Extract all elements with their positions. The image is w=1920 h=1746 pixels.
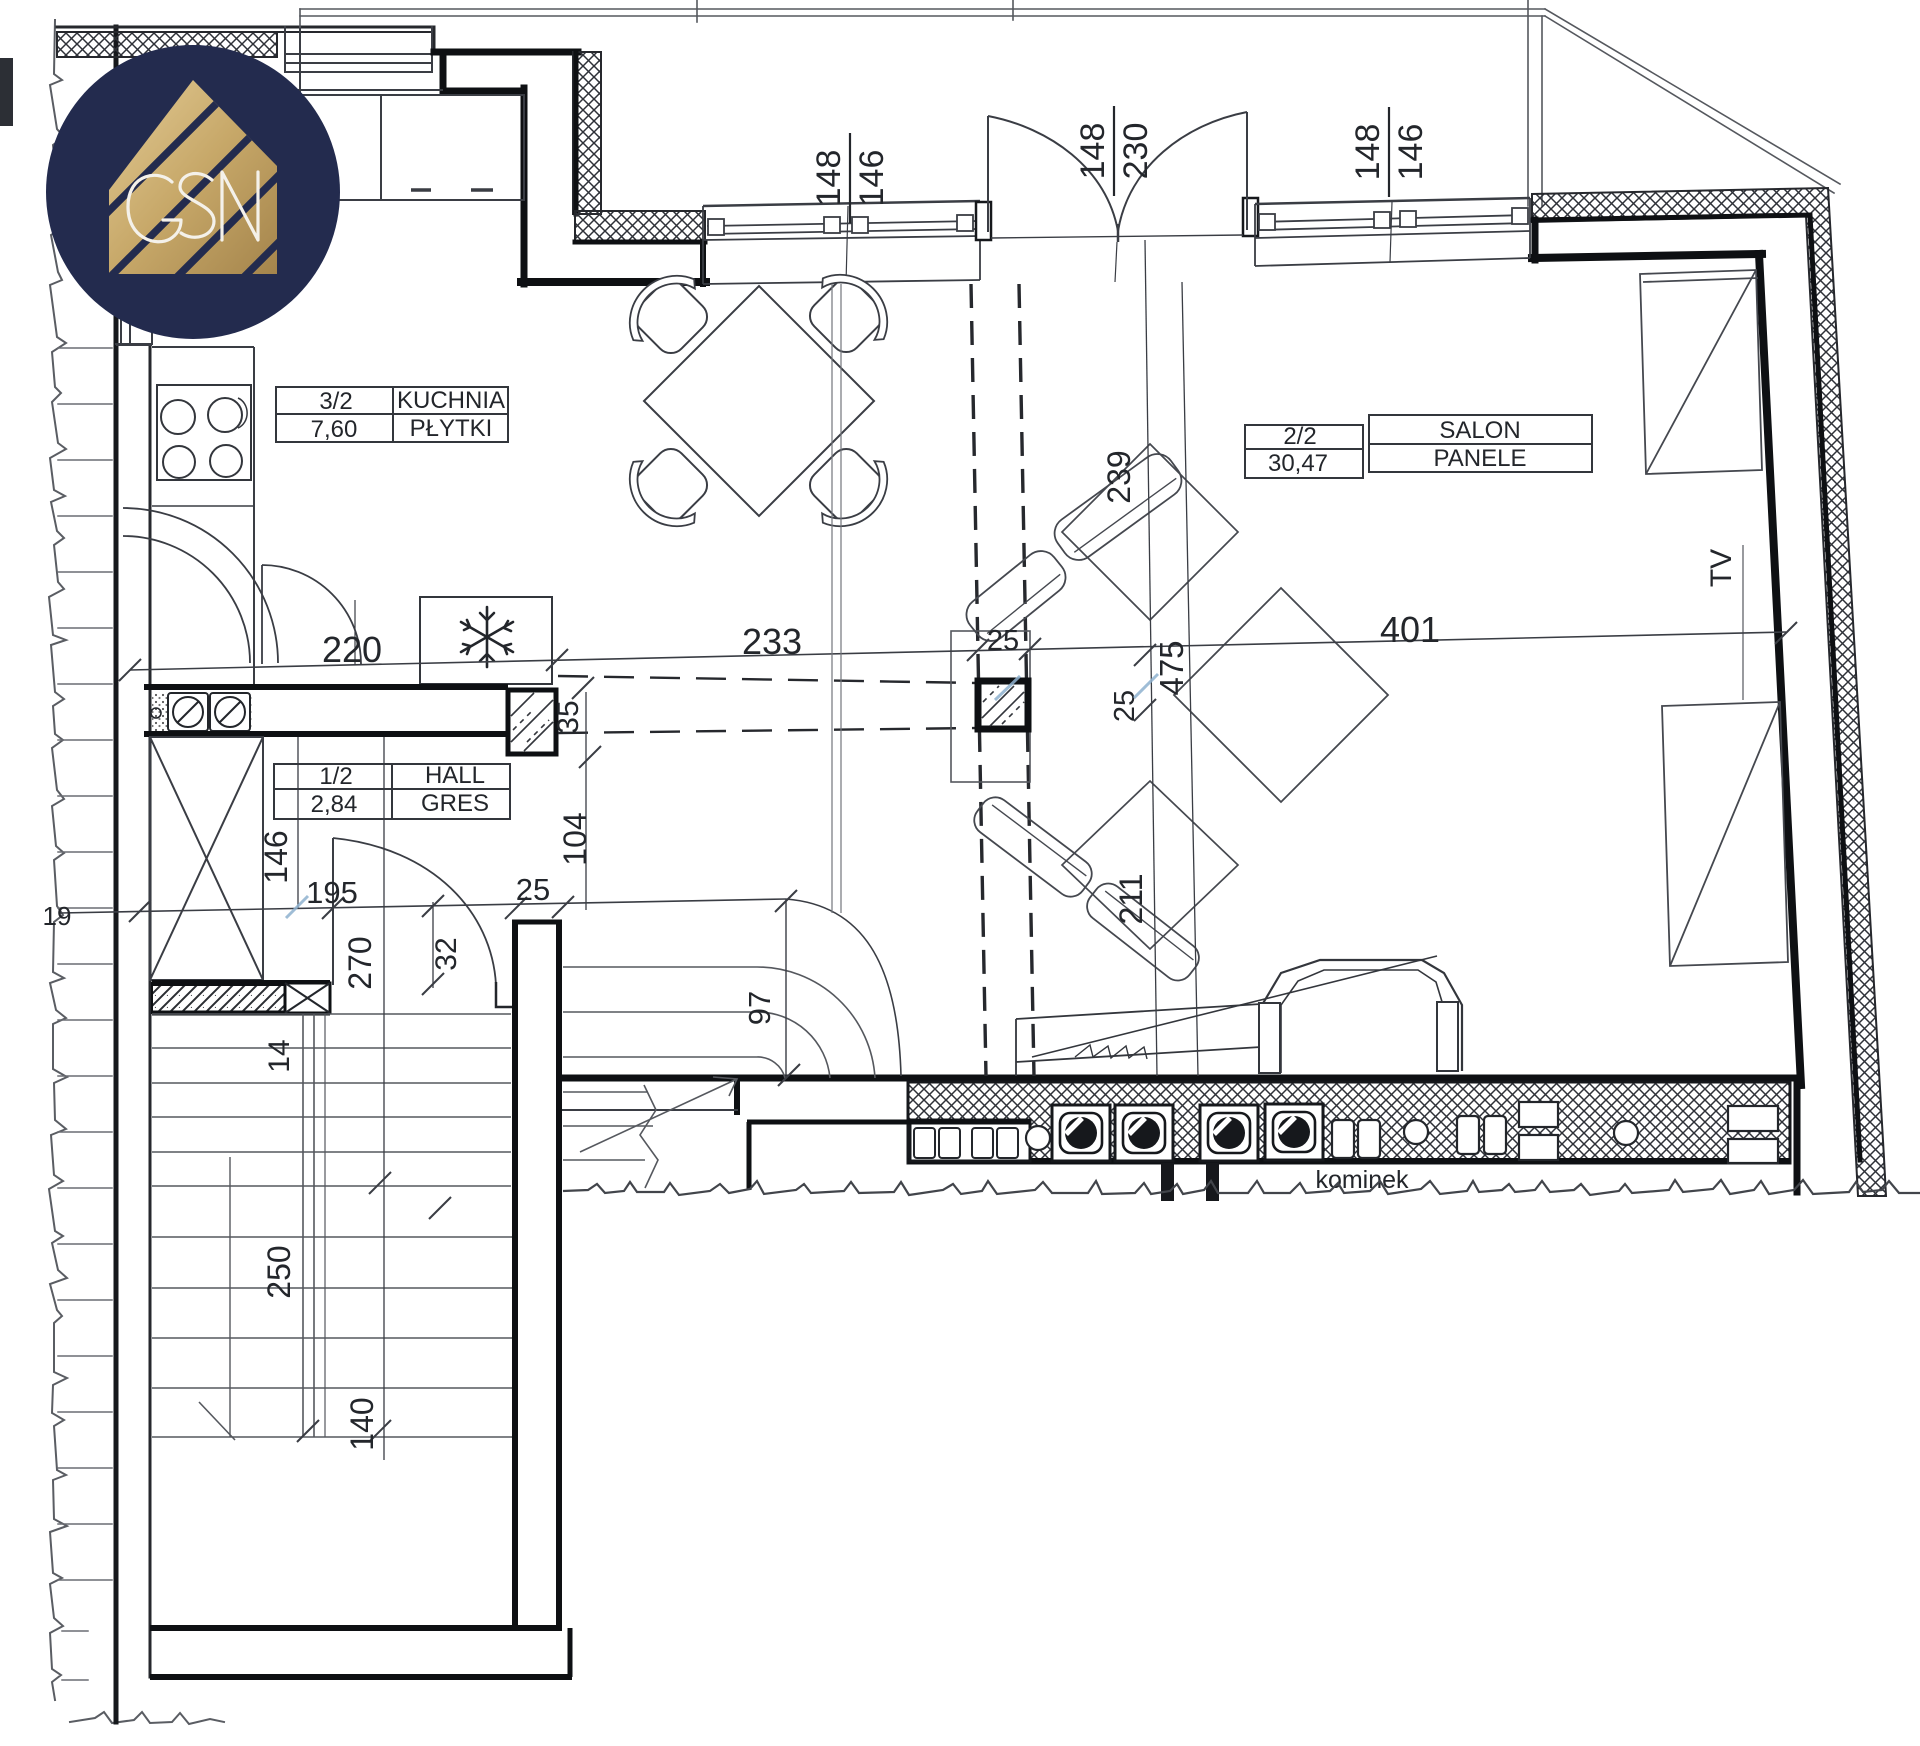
svg-text:kominek: kominek: [1315, 1166, 1409, 1194]
svg-text:401: 401: [1380, 609, 1440, 650]
svg-text:146: 146: [258, 830, 294, 883]
svg-text:1/2: 1/2: [319, 763, 352, 790]
svg-text:140: 140: [344, 1397, 380, 1450]
svg-text:2/2: 2/2: [1283, 423, 1316, 450]
svg-text:GRES: GRES: [421, 790, 489, 817]
svg-text:220: 220: [322, 629, 382, 670]
svg-text:146: 146: [853, 150, 891, 207]
svg-text:270: 270: [342, 936, 378, 989]
svg-text:250: 250: [261, 1245, 297, 1298]
svg-text:35: 35: [552, 700, 585, 733]
svg-text:25: 25: [516, 872, 550, 907]
svg-text:230: 230: [1117, 123, 1155, 180]
svg-text:97: 97: [742, 991, 777, 1025]
svg-text:211: 211: [1113, 873, 1149, 924]
svg-text:104: 104: [557, 812, 593, 865]
svg-text:475: 475: [1153, 640, 1190, 695]
svg-text:239: 239: [1101, 450, 1137, 503]
svg-text:HALL: HALL: [425, 762, 485, 789]
svg-text:146: 146: [1392, 124, 1430, 181]
svg-text:25: 25: [987, 625, 1019, 657]
svg-text:14: 14: [263, 1039, 296, 1072]
svg-text:30,47: 30,47: [1268, 450, 1328, 477]
svg-text:PANELE: PANELE: [1434, 445, 1527, 472]
svg-text:PŁYTKI: PŁYTKI: [410, 415, 493, 442]
svg-text:148: 148: [1074, 123, 1112, 180]
svg-text:TV: TV: [1705, 549, 1738, 587]
svg-text:32: 32: [430, 937, 463, 970]
svg-text:SALON: SALON: [1439, 417, 1520, 444]
svg-text:19: 19: [43, 901, 72, 931]
svg-text:KUCHNIA: KUCHNIA: [397, 387, 505, 414]
svg-text:3/2: 3/2: [319, 388, 352, 415]
svg-text:7,60: 7,60: [311, 416, 358, 443]
svg-text:2,84: 2,84: [311, 791, 358, 818]
svg-text:148: 148: [810, 150, 848, 207]
svg-text:195: 195: [306, 875, 358, 910]
svg-text:233: 233: [742, 621, 802, 662]
svg-text:148: 148: [1349, 124, 1387, 181]
